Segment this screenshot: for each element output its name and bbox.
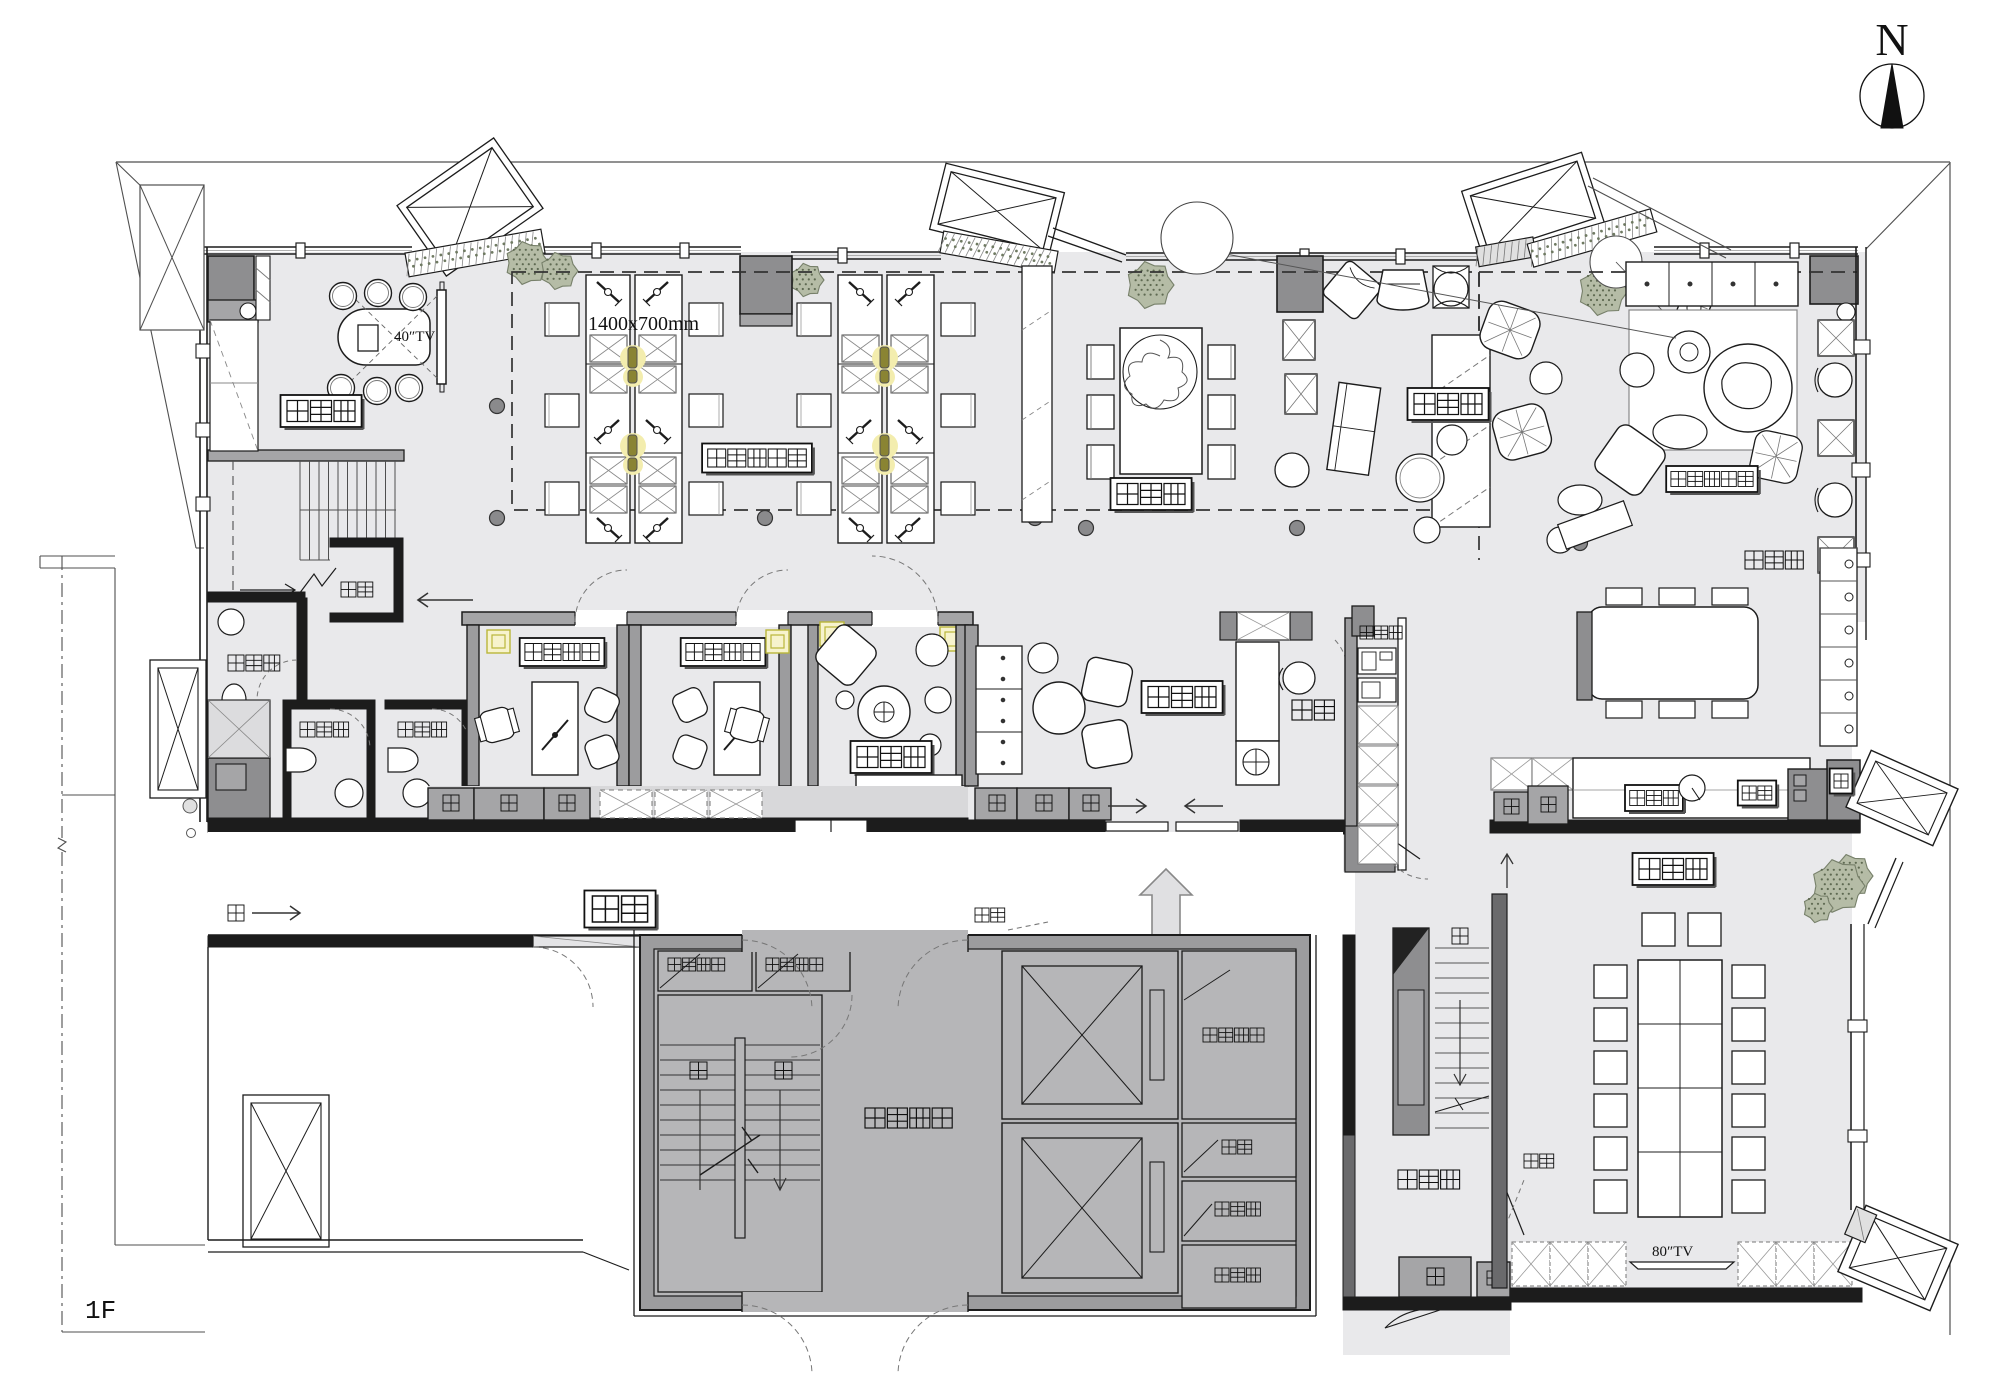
svg-text:N: N (1875, 14, 1908, 65)
svg-text:1400x700mm: 1400x700mm (588, 313, 700, 335)
svg-text:1F: 1F (85, 1296, 116, 1326)
svg-text:80″TV: 80″TV (1652, 1244, 1693, 1260)
svg-text:40″TV: 40″TV (394, 329, 435, 345)
